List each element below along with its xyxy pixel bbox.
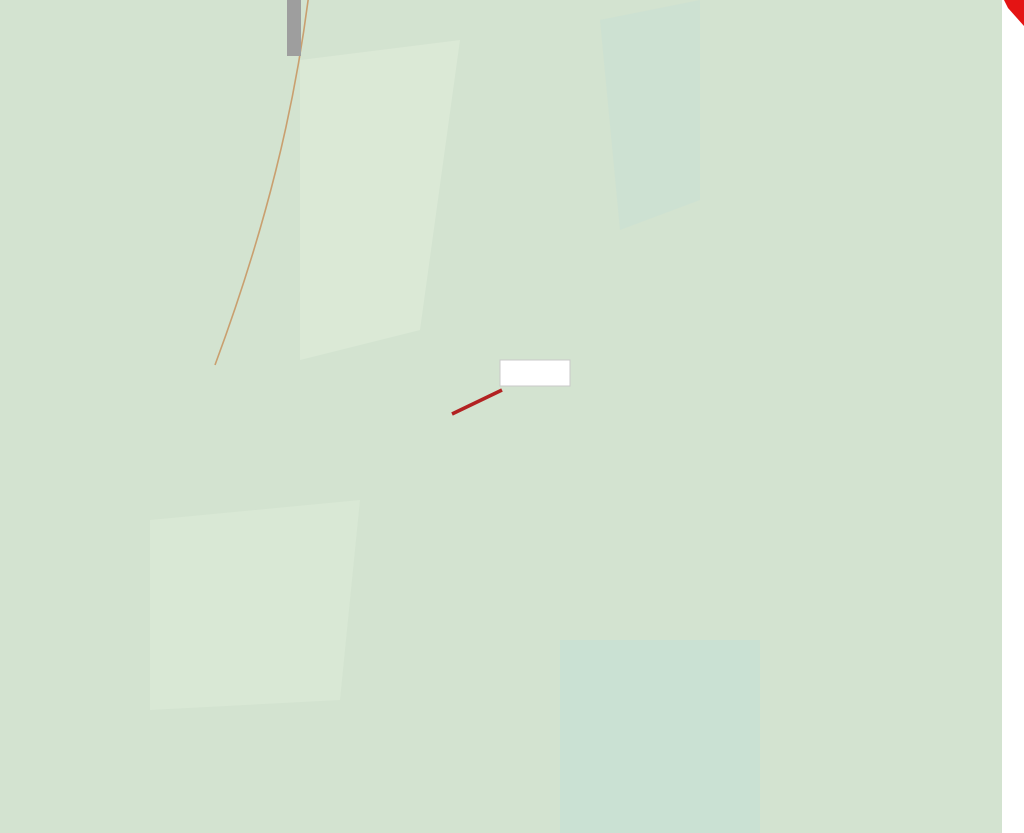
- map-viewport[interactable]: [0, 0, 1024, 833]
- map-sheet-edge: [1002, 0, 1024, 833]
- map-layers: [0, 0, 1024, 833]
- top-gray-bar: [287, 0, 301, 56]
- cadastral-map-canvas[interactable]: [0, 0, 1024, 833]
- parcel-label-box: [500, 360, 570, 386]
